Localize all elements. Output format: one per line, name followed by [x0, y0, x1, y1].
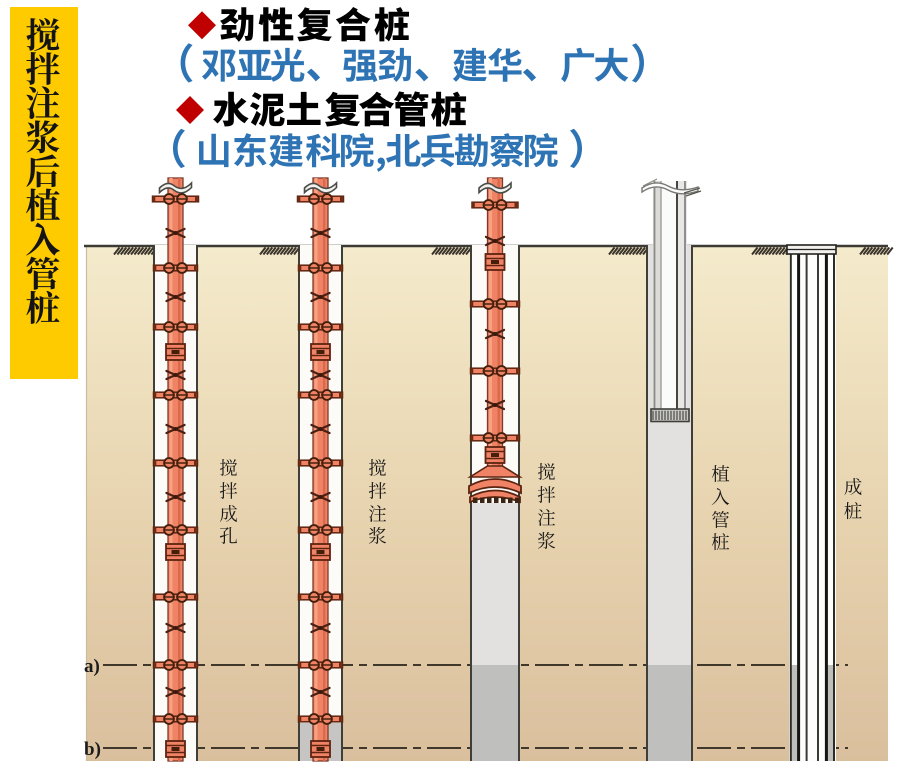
svg-text:b): b)	[84, 739, 101, 760]
svg-text:a): a)	[84, 656, 100, 677]
